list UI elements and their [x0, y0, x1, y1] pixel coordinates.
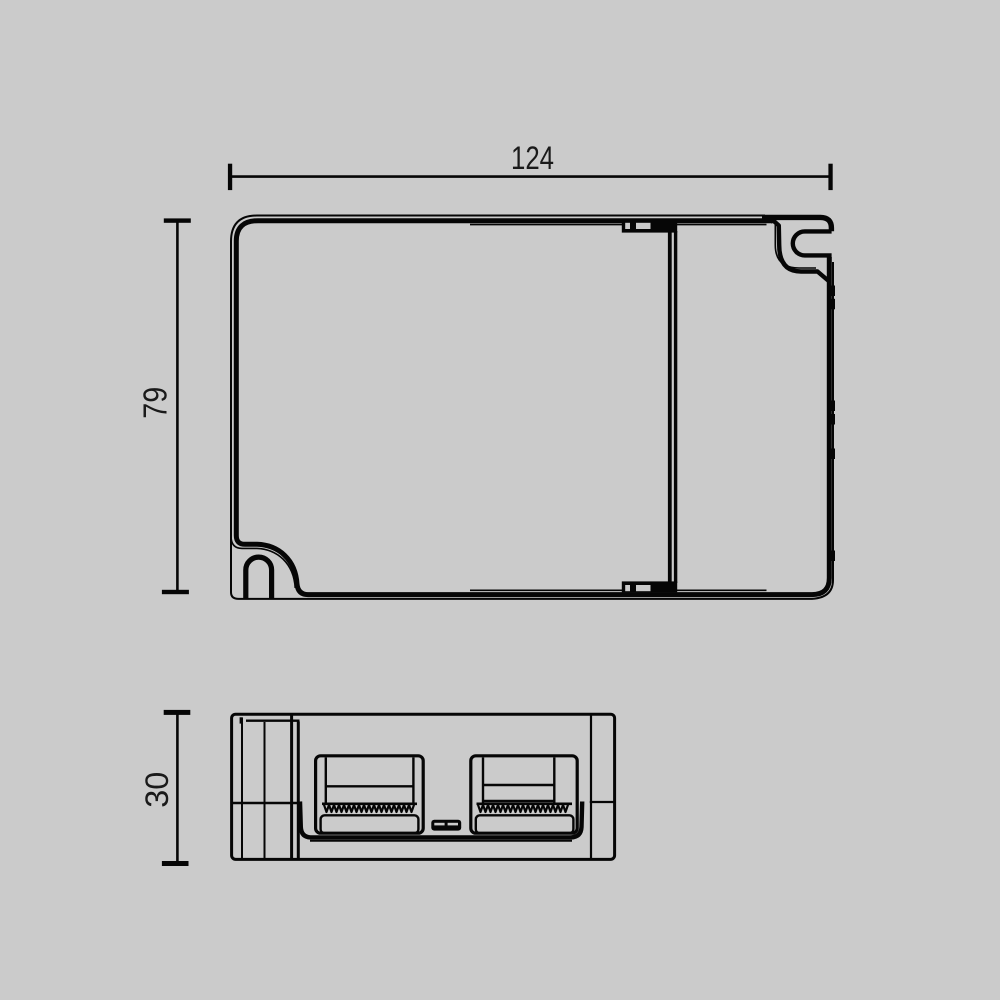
svg-text:124: 124 — [511, 140, 554, 176]
svg-text:30: 30 — [139, 772, 175, 808]
svg-text:79: 79 — [137, 387, 174, 419]
